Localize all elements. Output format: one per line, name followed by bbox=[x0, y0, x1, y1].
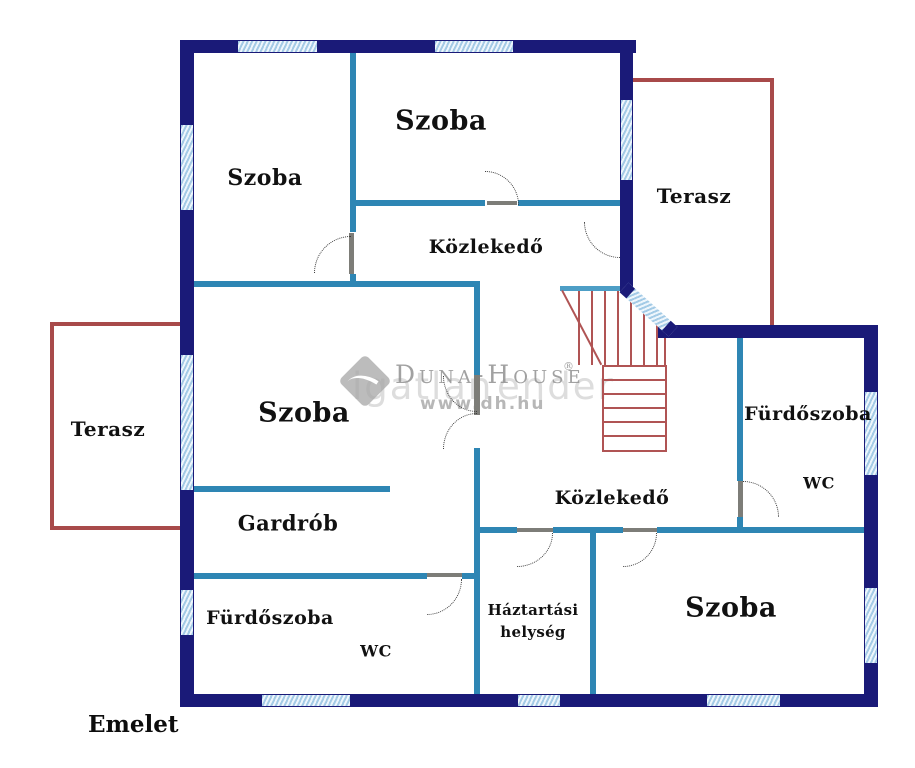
room-label-gardrob: Gardrób bbox=[238, 511, 339, 536]
window bbox=[621, 100, 632, 180]
wall-outer-diagonal bbox=[620, 283, 678, 337]
terrace-left-top-line bbox=[50, 322, 183, 326]
window bbox=[435, 41, 513, 52]
window bbox=[518, 695, 560, 706]
window bbox=[262, 695, 350, 706]
wall-kozlekedo-bottom-c bbox=[657, 527, 864, 533]
room-label-haztartasi-line2: helység bbox=[500, 623, 565, 641]
room-label-terasz-right: Terasz bbox=[657, 184, 731, 208]
room-label-furdoszoba-bottom: Fürdőszoba bbox=[206, 607, 334, 629]
room-label-szoba-bottom: Szoba bbox=[685, 593, 777, 624]
window bbox=[707, 695, 780, 706]
door-arc bbox=[584, 222, 620, 258]
door-leaf bbox=[427, 573, 462, 577]
wall-szoba-main-top bbox=[194, 281, 477, 287]
door-arc bbox=[314, 236, 351, 273]
window bbox=[181, 125, 193, 210]
wall-kozlekedo-bottom-a bbox=[474, 527, 517, 533]
registered-trademark-icon: ® bbox=[563, 360, 574, 373]
room-label-szoba-main: Szoba bbox=[258, 398, 350, 429]
wall-gardrob-partition bbox=[194, 486, 390, 492]
stair-winder-line bbox=[630, 293, 632, 365]
terrace-right-side-line bbox=[770, 78, 774, 329]
watermark-brand: Duna-House bbox=[395, 360, 585, 389]
terrace-left-bottom-line bbox=[50, 526, 183, 530]
wall-szoba-main-right-upper bbox=[474, 281, 480, 375]
window bbox=[238, 41, 317, 52]
wall-haztartasi-left bbox=[474, 533, 480, 694]
wall-szoba-main-right-lower bbox=[474, 448, 480, 530]
room-label-furdoszoba-right: Fürdőszoba bbox=[744, 403, 872, 425]
door-arc bbox=[517, 533, 553, 567]
door-arc bbox=[623, 533, 657, 567]
door-leaf bbox=[517, 528, 553, 532]
terrace-right-top-line bbox=[633, 78, 774, 82]
door-arc bbox=[427, 579, 462, 615]
terrace-left-side-line bbox=[50, 322, 54, 530]
room-label-szoba-top-left: Szoba bbox=[227, 165, 302, 191]
window bbox=[181, 355, 193, 490]
wall-kozlekedo-top-left bbox=[352, 200, 485, 206]
wall-furdoszoba-top-left bbox=[194, 573, 427, 579]
wall-furdoszoba-right-lower bbox=[737, 517, 743, 530]
stair-winder-line bbox=[604, 291, 606, 365]
logo-swoosh-icon bbox=[347, 367, 379, 396]
wall-haztartasi-right bbox=[590, 533, 596, 694]
room-label-terasz-left: Terasz bbox=[71, 417, 145, 441]
stairs-left-diagonal bbox=[561, 290, 602, 365]
door-arc bbox=[443, 413, 477, 449]
wall-kozlekedo-bottom-b bbox=[553, 527, 623, 533]
wall-kozlekedo-top-right bbox=[518, 200, 621, 206]
stair-winder-line bbox=[578, 291, 580, 365]
floor-title: Emelet bbox=[88, 711, 179, 738]
wall-furdoszoba-right-upper bbox=[737, 338, 743, 481]
room-label-haztartasi-line1: Háztartási bbox=[488, 601, 579, 619]
window bbox=[865, 588, 877, 663]
stair-winder-line bbox=[591, 291, 593, 365]
door-arc bbox=[743, 481, 779, 517]
room-label-wc-right: WC bbox=[803, 474, 835, 493]
window bbox=[181, 590, 193, 635]
room-label-kozlekedo-top: Közlekedő bbox=[429, 236, 544, 258]
watermark-url: www.dh.hu bbox=[420, 394, 545, 414]
room-label-szoba-top: Szoba bbox=[395, 106, 487, 137]
door-arc bbox=[485, 171, 519, 205]
wall-outer-mid-horizontal bbox=[658, 325, 878, 338]
room-label-wc-bottom: WC bbox=[360, 642, 392, 661]
stair-winder-line bbox=[617, 291, 619, 365]
room-label-kozlekedo-main: Közlekedő bbox=[555, 487, 670, 509]
floor-plan: igatlan ender Duna-House ® www.dh.hu bbox=[0, 0, 915, 768]
door-leaf bbox=[623, 528, 657, 532]
stairs-lower-flight bbox=[602, 365, 667, 452]
